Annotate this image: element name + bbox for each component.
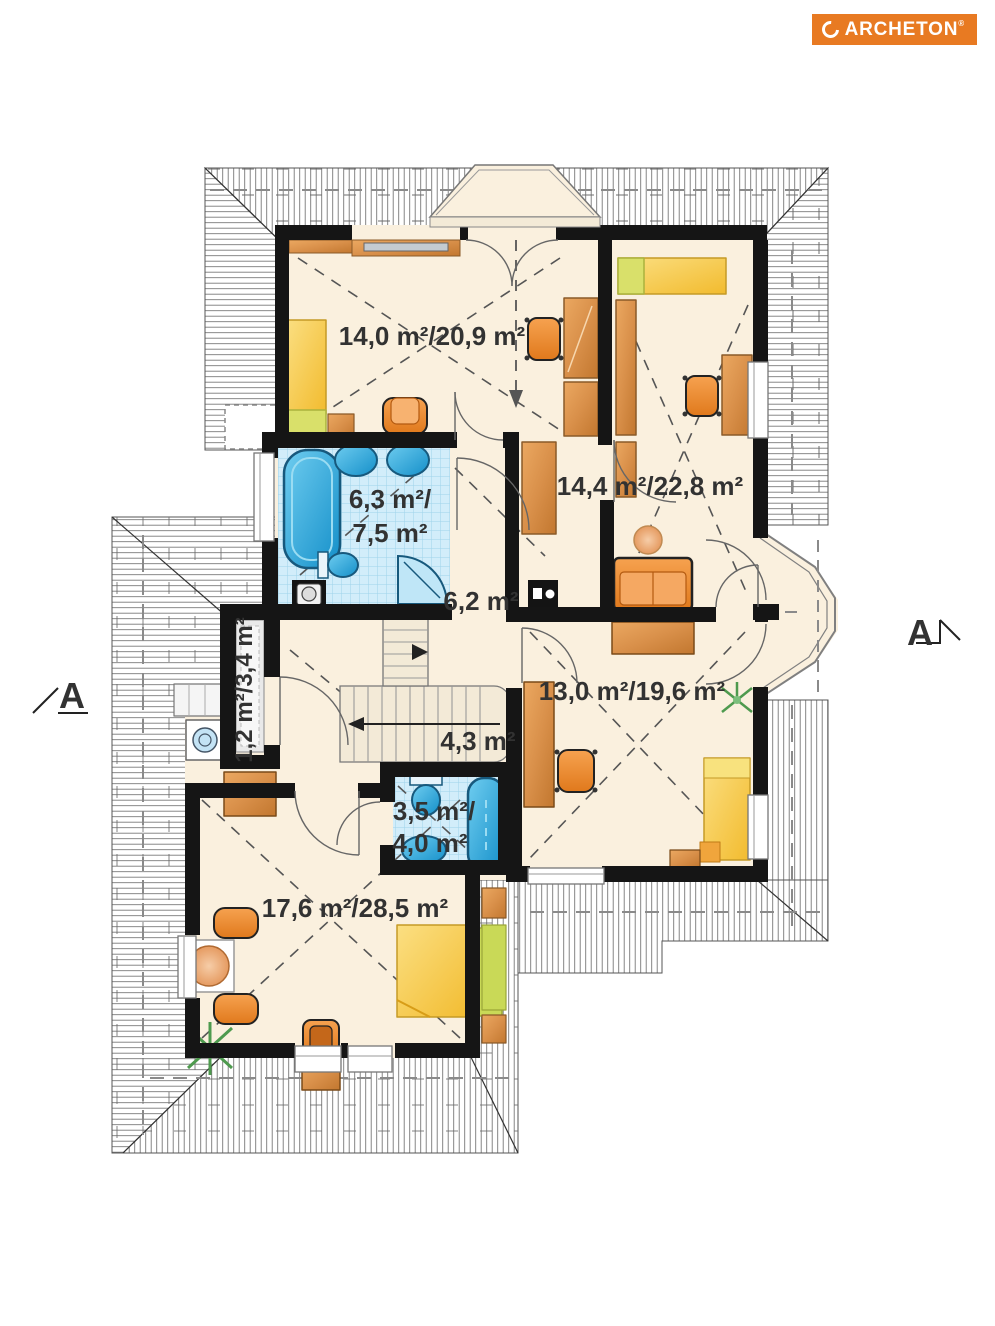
wardrobe [522,442,556,534]
label-hall: 6,2 m² [443,586,518,616]
sofa [614,558,692,610]
shelf [289,240,353,253]
section-marker-a-left: A [33,675,88,716]
sink-icon [335,444,377,476]
label-bathroom-small-line2: 4,0 m² [392,828,467,858]
window [748,795,768,859]
section-marker-a-right: A [907,612,960,653]
archeton-logo: ARCHETON® [812,14,977,45]
section-label-left: A [59,675,85,716]
office-chair [683,376,722,417]
section-label-right: A [907,612,933,653]
sink-icon [387,444,429,476]
label-bedroom-top-right: 14,4 m²/22,8 m² [557,471,744,501]
bed [700,758,750,862]
archeton-logo-icon [818,18,842,42]
label-bedroom-top-left: 14,0 m²/20,9 m² [339,321,526,351]
window [178,936,196,998]
floorplan-page: { "brand": {"name": "ARCHETON", "registe… [0,0,995,1326]
chimney [528,580,558,609]
label-bedroom-bottom-left: 17,6 m²/28,5 m² [262,893,449,923]
dresser [612,622,694,654]
washer-niche [292,580,326,608]
window [528,868,604,884]
wardrobe [564,298,598,436]
toilet-icon [318,552,358,578]
label-stairs: 4,3 m² [440,726,515,756]
window [748,362,768,438]
archeton-logo-text: ARCHETON® [845,20,965,39]
window [352,240,460,256]
armchair [383,398,427,434]
label-bathroom-small-line1: 3,5 m²/ [393,796,475,826]
side-table [634,526,662,554]
label-bathroom-line1: 6,3 m²/ [349,484,431,514]
office-chair [525,318,564,361]
under-roof-storage [482,888,506,1043]
office-chair [555,750,598,793]
washing-machine-icon [186,720,224,760]
label-utility: 1,2 m²/3,4 m² [231,617,258,762]
bedside-table [670,850,700,868]
label-room-middle-right: 13,0 m²/19,6 m² [539,676,726,706]
label-bathroom-line2: 7,5 m² [352,518,427,548]
floor-plan-drawing: 14,0 m²/20,9 m² 14,4 m²/22,8 m² 6,3 m²/ … [0,0,995,1326]
registered-mark: ® [958,19,965,28]
window [254,453,274,541]
bed [618,258,726,294]
wardrobe [616,300,636,497]
bed [286,320,326,436]
